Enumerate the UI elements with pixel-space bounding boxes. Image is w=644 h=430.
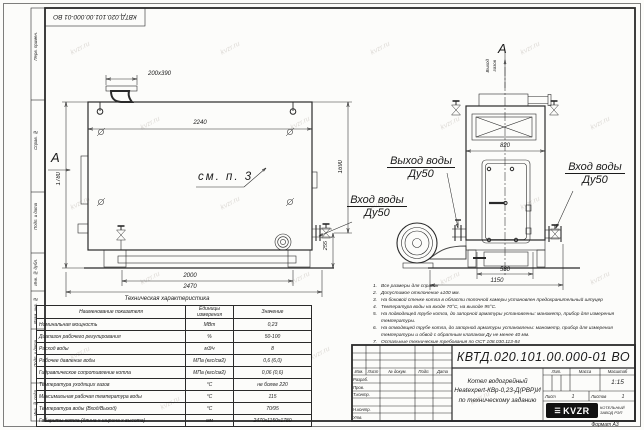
margin-label-inv-dubl: Инв. № дубл. [33,259,38,286]
tech-cell-value: 0,23 [234,319,312,331]
water-inlet-side-title: Вход воды [565,161,624,174]
dim-base-inner: 2000 [176,273,204,279]
tech-cell-unit: МПа (кгс/см2) [186,367,234,379]
tech-cell-name: Рабочее давление воды [37,355,186,367]
tech-cell-unit: °С [186,379,234,391]
view-arrow-label-side: А [498,41,507,56]
table-row: Максимальная рабочая температура воды°С1… [37,391,312,403]
margin-label-perv-primen: Перв. примен. [33,32,38,61]
tech-table-header-row: Наименование показателя Единицы измерени… [37,306,312,319]
tech-cell-name: Диапазон рабочего регулирования [37,331,186,343]
tech-header-value: Значение [234,306,312,319]
product-name-line2: Heatexpert-КВр-0,23-Д(РВР)И [454,386,541,395]
top-stamp-designation: КВТД.020.101.00.000-01 ВО [45,8,145,26]
notes-block: 1.Все размеры для справок 2.Допустимое о… [368,284,632,347]
gas-outlet-label-line1: Выход [485,59,490,73]
table-row: Расход водым3/ч8 [37,343,312,355]
main-view-dimensions [48,75,352,297]
water-outlet-title: Выход воды [387,155,455,168]
note-number: 5. [368,312,381,326]
tech-table-title: Техническая характеристика [36,296,298,305]
dim-pipe: 255 [323,241,329,250]
tb-col-doc: № докум. [380,369,415,374]
tb-sheet-label: Лист [545,394,561,399]
title-block-product-name: Котел водогрейный Heatexpert-КВр-0,23-Д(… [452,369,543,413]
note-number: 2. [368,291,381,298]
dim-top-width: 2240 [186,120,214,126]
kvzr-logo: ☰ KVZR [546,403,598,418]
water-inlet-side-label: Вход воды Ду50 [558,161,632,186]
tb-sheets-value: 1 [618,394,628,400]
margin-label-sprav-no: Справ. № [33,130,38,150]
product-name-line1: Котел водогрейный [468,377,528,386]
note-number: 3. [368,298,381,305]
tech-cell-unit: °С [186,403,234,415]
tb-row-razrab: Разраб. [353,377,379,382]
water-outlet-label: Выход воды Ду50 [383,155,459,180]
tb-row-prov: Пров. [353,385,379,390]
note-number: 6. [368,326,381,340]
dim-side-base-inner: 580 [492,267,518,273]
note-item: 1.Все размеры для справок [368,284,632,291]
water-inlet-main-label: Вход воды Ду50 [341,194,413,219]
note-item: 6.На отводящей трубе котла, до запорной … [368,326,632,340]
note-item: 5.На подводящей трубе котла, до запорной… [368,312,632,326]
title-block-designation: КВТД.020.101.00.000-01 ВО [452,345,635,368]
tech-cell-name: Температура уходящих газов [37,379,186,391]
tb-col-sign: Подп. [415,369,433,374]
tb-col-list: Лист [366,369,380,374]
tech-cell-unit: МВт [186,319,234,331]
tech-cell-name: Температура воды (Вход/Выход) [37,403,186,415]
tb-row-tcontr: Т.контр. [353,392,379,397]
dim-height-left: 1780 [56,172,62,185]
drawing-sheet: kvzr.ru kvzr.ru kvzr.ru kvzr.ru kvzr.ru … [0,0,644,430]
tech-cell-value: не более 220 [234,379,312,391]
note-number: 4. [368,305,381,312]
tech-cell-name: Расход воды [37,343,186,355]
tech-cell-value: 115 [234,391,312,403]
tech-characteristics: Техническая характеристика Наименование … [36,296,298,427]
product-name-line3: по техническому заданию [459,396,537,405]
tech-cell-name: Номинальная мощность [37,319,186,331]
gas-outlet-label-line2: газов [492,60,497,71]
dim-side-width: 820 [490,143,520,149]
tech-cell-unit: МПа (кгс/см2) [186,355,234,367]
tb-sheet-value: 1 [568,394,578,400]
table-row: Диапазон рабочего регулирования%50-100 [37,331,312,343]
note-text: На боковой стенке котла в области топочн… [381,298,631,305]
tech-cell-unit: % [186,331,234,343]
logo-subtitle-line2: ЗАВОД РЭП [600,410,634,415]
tech-cell-name: Габариты котла (длина х ширина х высота) [37,415,186,427]
see-note-label: см. п. 3 [198,171,253,183]
tech-cell-name: Максимальная рабочая температура воды [37,391,186,403]
tech-cell-unit: м3/ч [186,343,234,355]
table-row: Номинальная мощностьМВт0,23 [37,319,312,331]
table-row: Температура воды (Вход/Выход)°С70/95 [37,403,312,415]
tech-cell-value: 0,6 (6,0) [234,355,312,367]
table-row: Температура уходящих газов°Сне более 220 [37,379,312,391]
note-text: Допустимое отклонение ±100 мм. [381,291,631,298]
water-inlet-side-dn: Ду50 [582,174,608,186]
tb-col-date: Дата [433,369,452,374]
logo-text: KVZR [563,406,590,416]
water-inlet-main-title: Вход воды [347,194,406,207]
water-inlet-main-dn: Ду50 [364,207,390,219]
tb-lit-label: Лит. [543,369,570,374]
tech-table: Наименование показателя Единицы измерени… [36,305,312,427]
table-row: Рабочее давление водыМПа (кгс/см2)0,6 (6… [37,355,312,367]
tech-cell-unit: °С [186,391,234,403]
water-outlet-dn: Ду50 [408,168,434,180]
dim-base-outer: 2470 [176,284,204,290]
tech-header-units: Единицы измерения [186,306,234,319]
tech-cell-value: 2470х1150х1780 [234,415,312,427]
note-text: На подводящей трубе котла, до запорной а… [381,312,631,326]
tech-cell-value: 0,06 (0,6) [234,367,312,379]
format-label: Формат А3 [575,422,635,428]
note-number: 7. [368,340,381,347]
note-text: Температура воды на входе 70°С, на выход… [381,305,631,312]
tech-cell-unit: мм [186,415,234,427]
note-number: 1. [368,284,381,291]
tech-header-name: Наименование показателя [37,306,186,319]
tech-cell-name: Гидравлическое сопротивление котла [37,367,186,379]
tb-scale-value: 1:15 [600,379,635,386]
tb-scale-label: Масштаб [600,369,635,374]
margin-label-podp-data1: Подп. и дата [33,203,38,230]
dim-flue: 200х390 [148,71,171,77]
note-text: Все размеры для справок [381,284,631,291]
view-arrow-label-main: А [51,150,60,165]
tech-cell-value: 50-100 [234,331,312,343]
tb-sheets-label: Листов [591,394,611,399]
tb-row-ncontr: Н.контр. [353,407,379,412]
dim-side-base-outer: 1150 [481,278,513,284]
table-row: Гидравлическое сопротивление котлаМПа (к… [37,367,312,379]
note-text: На отводящей трубе котла, до запорной ар… [381,326,631,340]
logo-bars-icon: ☰ [554,407,561,415]
note-item: 2.Допустимое отклонение ±100 мм. [368,291,632,298]
tech-cell-value: 70/95 [234,403,312,415]
logo-subtitle: КОТЕЛЬНЫЙ ЗАВОД РЭП [600,405,634,415]
dim-height-right: 1690 [338,160,344,173]
table-row: Габариты котла (длина х ширина х высота)… [37,415,312,427]
tech-cell-value: 8 [234,343,312,355]
tb-row-utv: Утв. [353,415,379,420]
tb-col-izm: Изм. [352,369,366,374]
note-item: 4.Температура воды на входе 70°С, на вых… [368,305,632,312]
tb-mass-label: Масса [570,369,600,374]
note-item: 3.На боковой стенке котла в области топо… [368,298,632,305]
